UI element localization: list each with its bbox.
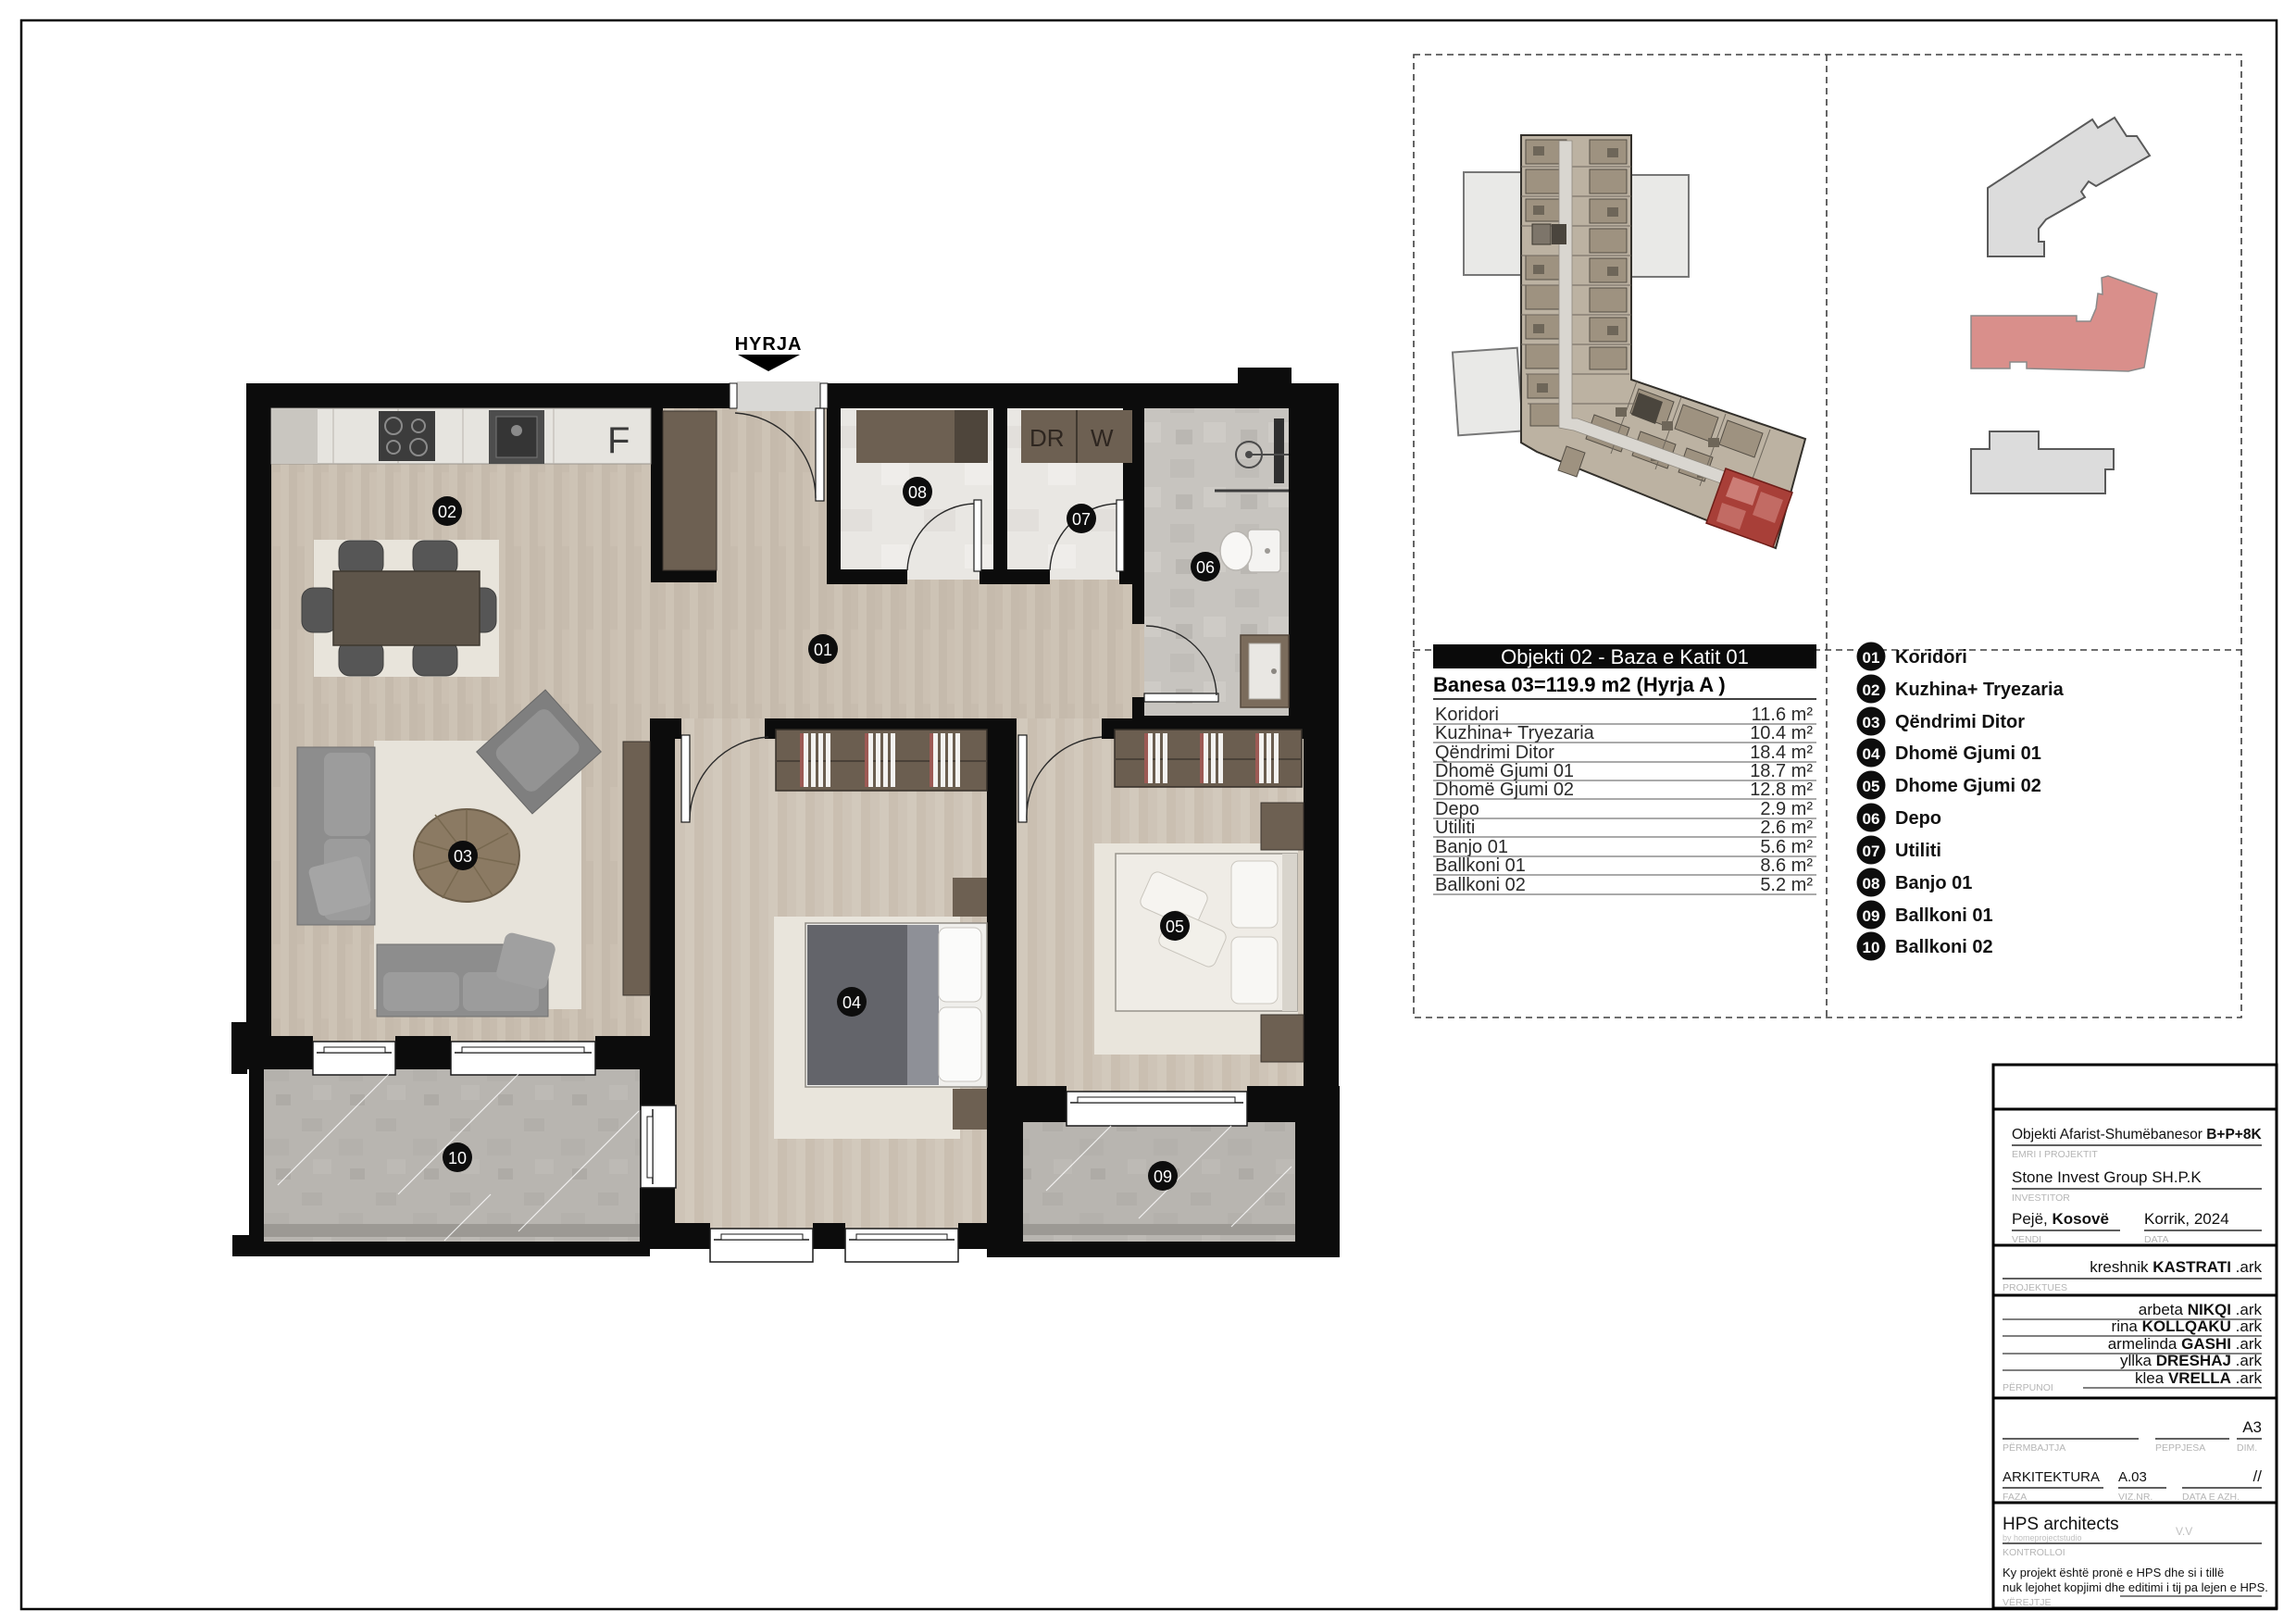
svg-text:Qëndrimi Ditor: Qëndrimi Ditor [1435, 743, 1554, 763]
svg-text:FAZA: FAZA [2003, 1492, 2027, 1503]
svg-text:Utiliti: Utiliti [1435, 818, 1475, 838]
svg-text:05: 05 [1166, 918, 1184, 936]
svg-text:Kuzhina+ Tryezaria: Kuzhina+ Tryezaria [1435, 723, 1595, 743]
svg-text:09: 09 [1863, 907, 1880, 925]
svg-text:Dhomë Gjumi 02: Dhomë Gjumi 02 [1435, 780, 1574, 800]
svg-text:10: 10 [1863, 939, 1880, 956]
svg-text:Ballkoni 02: Ballkoni 02 [1435, 875, 1526, 895]
svg-text:5.2 m²: 5.2 m² [1760, 875, 1813, 895]
svg-text:08: 08 [908, 483, 927, 502]
svg-text:Banesa 03=119.9 m2 (Hyrja A ): Banesa 03=119.9 m2 (Hyrja A ) [1433, 673, 1726, 696]
svg-text:V.V: V.V [2176, 1525, 2192, 1538]
svg-text:Depo: Depo [1435, 799, 1479, 819]
svg-text:Dhome Gjumi 02: Dhome Gjumi 02 [1895, 776, 2041, 796]
svg-text:armelinda GASHI .ark: armelinda GASHI .ark [2108, 1335, 2263, 1353]
svg-text:nuk lejohet kopjimi dhe editim: nuk lejohet kopjimi dhe editimi i tij pa… [2003, 1580, 2268, 1594]
svg-text:06: 06 [1863, 810, 1880, 828]
svg-text:arbeta NIKQI .ark: arbeta NIKQI .ark [2139, 1301, 2263, 1318]
svg-text:Ballkoni 01: Ballkoni 01 [1435, 855, 1526, 876]
svg-text:HYRJA: HYRJA [735, 334, 803, 355]
svg-text:Banjo 01: Banjo 01 [1895, 873, 1972, 893]
svg-text:10.4 m²: 10.4 m² [1750, 723, 1813, 743]
svg-text:PROJEKTUES: PROJEKTUES [2003, 1282, 2067, 1293]
svg-text:Koridori: Koridori [1435, 705, 1499, 725]
svg-text:VENDI: VENDI [2012, 1234, 2041, 1245]
svg-text:Objekti Afarist-Shumëbanesor B: Objekti Afarist-Shumëbanesor B+P+8K [2012, 1127, 2262, 1142]
svg-text:Pejë, Kosovë: Pejë, Kosovë [2012, 1210, 2109, 1228]
svg-text:DATA: DATA [2144, 1234, 2168, 1245]
svg-text:05: 05 [1863, 778, 1880, 795]
svg-text:VIZ.NR.: VIZ.NR. [2118, 1492, 2152, 1503]
svg-text:18.7 m²: 18.7 m² [1750, 761, 1813, 781]
svg-text:Ballkoni 02: Ballkoni 02 [1895, 937, 1993, 957]
svg-text:KONTROLLOI: KONTROLLOI [2003, 1547, 2065, 1558]
svg-text:PËRMBAJTJA: PËRMBAJTJA [2003, 1442, 2065, 1454]
svg-text:VËREJTJE: VËREJTJE [2003, 1597, 2052, 1608]
svg-text:Ballkoni 01: Ballkoni 01 [1895, 905, 1993, 926]
svg-text:Stone Invest Group SH.P.K: Stone Invest Group SH.P.K [2012, 1168, 2202, 1186]
svg-text:PEPPJESA: PEPPJESA [2155, 1442, 2205, 1454]
svg-text:Depo: Depo [1895, 808, 1941, 829]
svg-text:8.6 m²: 8.6 m² [1760, 855, 1813, 876]
svg-text:03: 03 [454, 847, 472, 866]
svg-text:01: 01 [814, 641, 832, 659]
svg-text:02: 02 [1863, 681, 1880, 699]
svg-text:03: 03 [1863, 714, 1880, 731]
svg-text:HPS architects: HPS architects [2003, 1515, 2119, 1534]
svg-text:04: 04 [842, 993, 861, 1012]
svg-text:DATA E AZH.: DATA E AZH. [2182, 1492, 2240, 1503]
svg-text:Qëndrimi Ditor: Qëndrimi Ditor [1895, 712, 2025, 732]
svg-text:04: 04 [1863, 745, 1880, 763]
svg-text:18.4 m²: 18.4 m² [1750, 743, 1813, 763]
svg-text:2.6 m²: 2.6 m² [1760, 818, 1813, 838]
svg-text:Utiliti: Utiliti [1895, 841, 1941, 861]
svg-text:rina KOLLQAKU .ark: rina KOLLQAKU .ark [2112, 1317, 2263, 1335]
svg-text:by homeprojectstudio: by homeprojectstudio [2003, 1533, 2082, 1542]
svg-text:11.6 m²: 11.6 m² [1752, 705, 1814, 725]
svg-text:Koridori: Koridori [1895, 647, 1967, 668]
svg-text:2.9 m²: 2.9 m² [1760, 799, 1813, 819]
svg-text:02: 02 [438, 503, 456, 521]
svg-text:kreshnik KASTRATI .ark: kreshnik KASTRATI .ark [2090, 1258, 2262, 1276]
svg-text:Kuzhina+ Tryezaria: Kuzhina+ Tryezaria [1895, 680, 2065, 700]
svg-text:10: 10 [448, 1149, 467, 1167]
svg-text:Ky projekt është pronë e HPS d: Ky projekt është pronë e HPS dhe si i ti… [2003, 1566, 2224, 1579]
svg-text:09: 09 [1154, 1167, 1172, 1186]
svg-text:PËRPUNOI: PËRPUNOI [2003, 1382, 2053, 1393]
svg-text:12.8 m²: 12.8 m² [1750, 780, 1813, 800]
svg-text:yllka DRESHAJ .ark: yllka DRESHAJ .ark [2120, 1352, 2263, 1369]
svg-text:07: 07 [1072, 510, 1091, 529]
svg-text:A.03: A.03 [2118, 1469, 2147, 1485]
svg-text:W: W [1091, 424, 1114, 452]
svg-text:Dhomë Gjumi 01: Dhomë Gjumi 01 [1435, 761, 1574, 781]
svg-text:08: 08 [1863, 875, 1880, 893]
svg-text:Banjo 01: Banjo 01 [1435, 837, 1508, 857]
svg-text:INVESTITOR: INVESTITOR [2012, 1192, 2070, 1204]
svg-text:07: 07 [1863, 843, 1880, 860]
svg-text:ARKITEKTURA: ARKITEKTURA [2003, 1469, 2100, 1485]
svg-text://: // [2253, 1467, 2263, 1485]
svg-text:A3: A3 [2242, 1418, 2262, 1436]
svg-text:EMRI I PROJEKTIT: EMRI I PROJEKTIT [2012, 1149, 2098, 1160]
svg-text:5.6 m²: 5.6 m² [1760, 837, 1813, 857]
svg-text:01: 01 [1863, 649, 1880, 667]
svg-text:Korrik, 2024: Korrik, 2024 [2144, 1210, 2229, 1228]
svg-text:06: 06 [1196, 558, 1215, 577]
svg-text:F: F [607, 420, 630, 461]
svg-text:klea VRELLA .ark: klea VRELLA .ark [2135, 1369, 2262, 1387]
svg-text:DIM.: DIM. [2237, 1442, 2257, 1454]
svg-text:Dhomë Gjumi 01: Dhomë Gjumi 01 [1895, 743, 2041, 764]
svg-text:Objekti 02 - Baza e Katit 01: Objekti 02 - Baza e Katit 01 [1501, 645, 1749, 668]
svg-text:DR: DR [1029, 424, 1065, 452]
